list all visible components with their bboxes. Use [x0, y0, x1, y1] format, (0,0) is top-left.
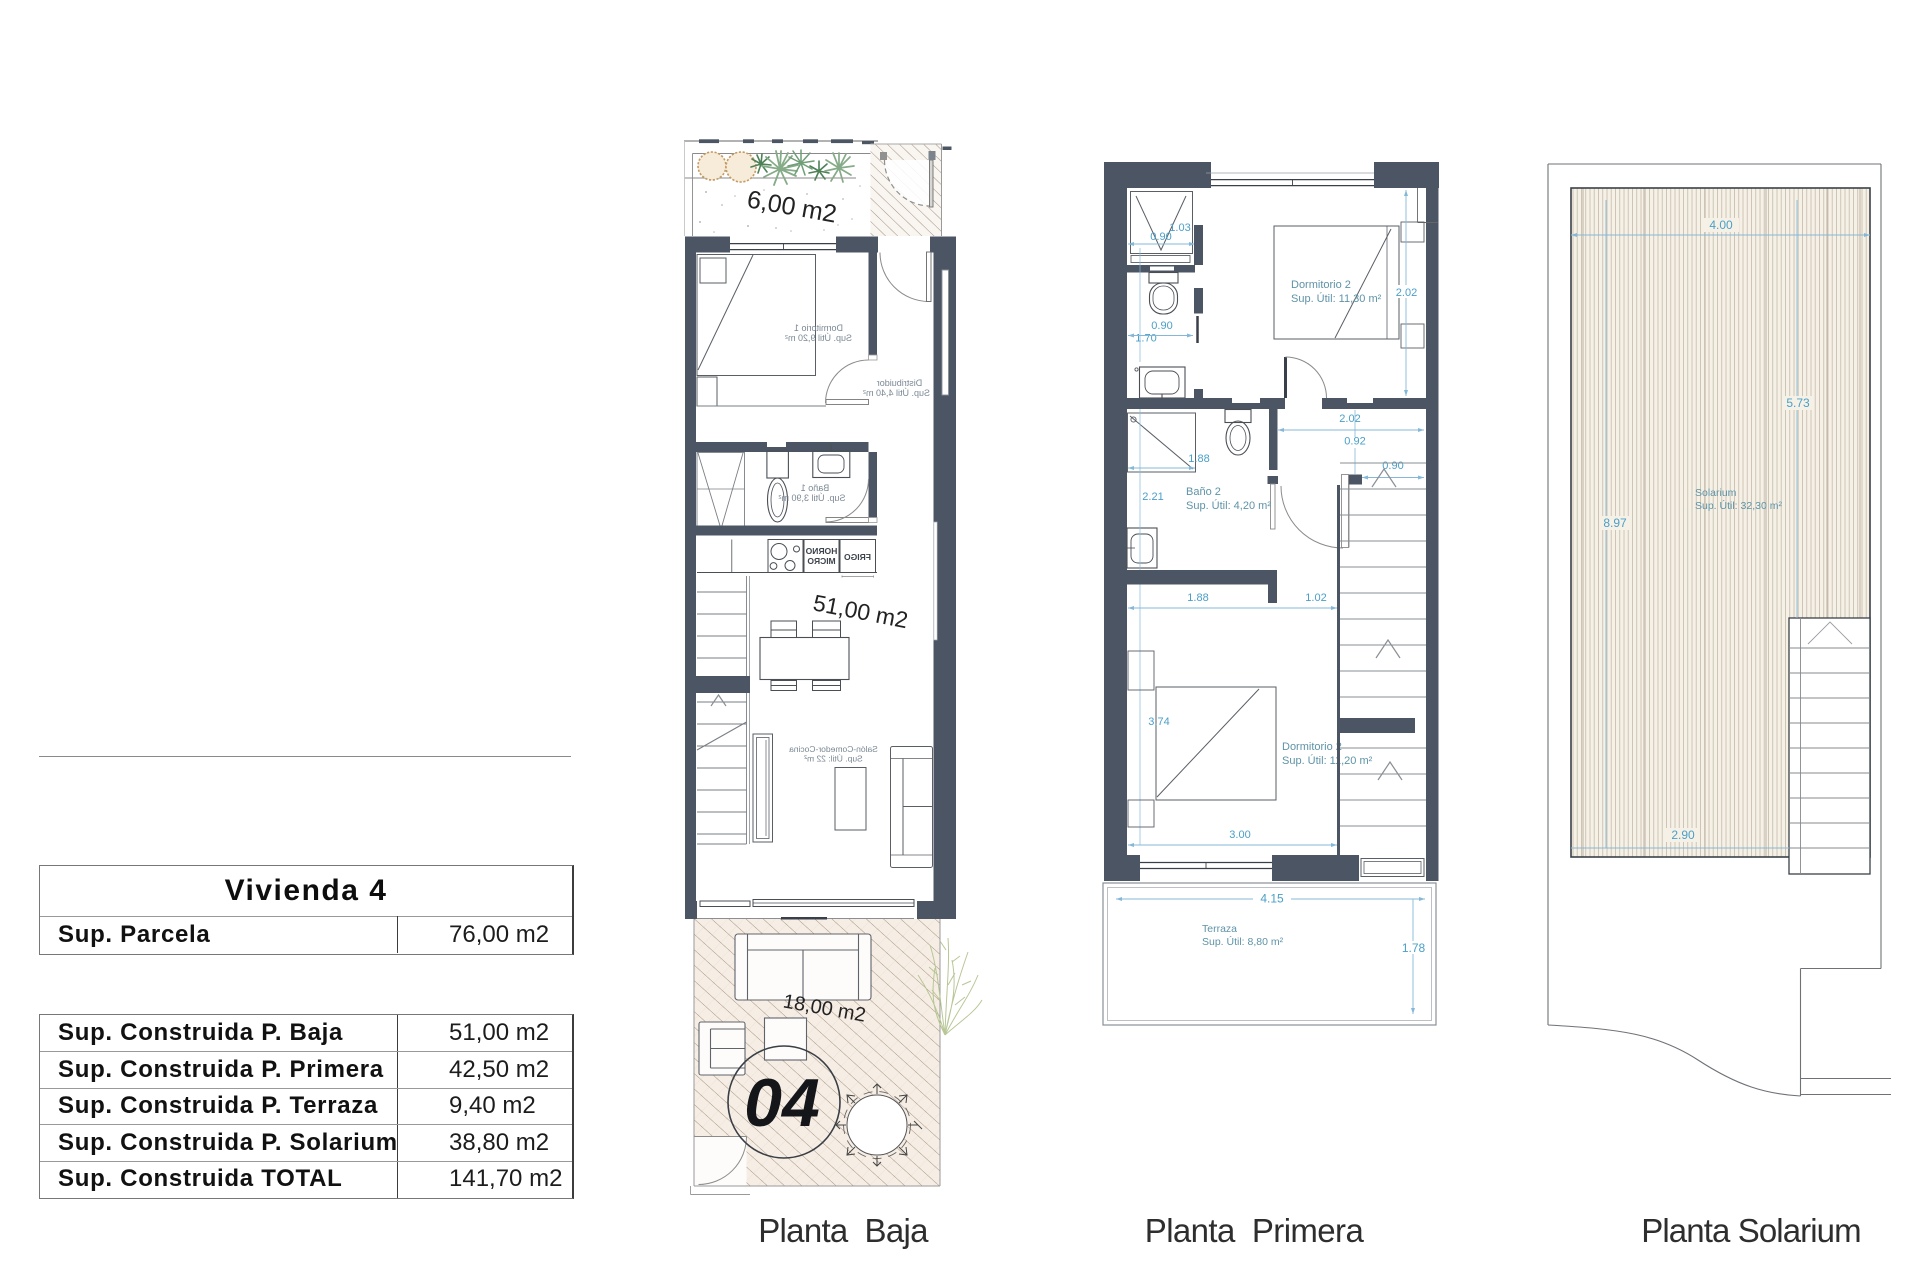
svg-text:04: 04 [744, 1065, 820, 1141]
svg-text:3.00: 3.00 [1229, 829, 1250, 841]
svg-text:Sup. Útil 4,40 m²: Sup. Útil 4,40 m² [863, 388, 930, 398]
svg-text:Dormitorio 2: Dormitorio 2 [1282, 741, 1342, 753]
svg-text:5.73: 5.73 [1786, 396, 1810, 410]
svg-text:Sup. Útil: 32,30 m²: Sup. Útil: 32,30 m² [1695, 499, 1782, 512]
svg-text:0.90: 0.90 [1150, 231, 1171, 243]
svg-text:4.15: 4.15 [1260, 892, 1284, 906]
svg-text:Terraza: Terraza [1202, 923, 1237, 935]
svg-text:6,00 m2: 6,00 m2 [745, 185, 839, 228]
svg-text:3.74: 3.74 [1148, 716, 1169, 728]
svg-text:1.70: 1.70 [1135, 333, 1156, 345]
svg-text:Sup. Útil: 4,20 m²: Sup. Útil: 4,20 m² [1186, 499, 1271, 512]
svg-text:1.78: 1.78 [1402, 941, 1426, 955]
svg-text:1.88: 1.88 [1187, 592, 1208, 604]
svg-text:Sup. Útil: 11,20 m²: Sup. Útil: 11,20 m² [1282, 754, 1373, 767]
svg-text:4.00: 4.00 [1709, 218, 1733, 232]
svg-text:2.90: 2.90 [1671, 828, 1695, 842]
svg-text:FRIGO: FRIGO [844, 552, 871, 562]
svg-text:0.90: 0.90 [1151, 320, 1172, 332]
svg-text:2.02: 2.02 [1396, 287, 1417, 299]
svg-text:8.97: 8.97 [1603, 516, 1627, 530]
svg-text:Baño 1: Baño 1 [801, 483, 830, 493]
svg-text:Solarium: Solarium [1695, 487, 1737, 499]
svg-text:Baño 2: Baño 2 [1186, 486, 1221, 498]
svg-text:Dormitorio 1: Dormitorio 1 [794, 323, 843, 333]
svg-text:Sup. Útil 3,90 m²: Sup. Útil 3,90 m² [778, 493, 845, 503]
svg-text:Salón-Comedor-Cocina: Salón-Comedor-Cocina [789, 744, 878, 754]
svg-text:1.02: 1.02 [1305, 592, 1326, 604]
svg-text:MICRO: MICRO [807, 556, 836, 566]
svg-text:Dormitorio 2: Dormitorio 2 [1291, 279, 1351, 291]
svg-text:1.88: 1.88 [1188, 453, 1209, 465]
svg-text:2.21: 2.21 [1142, 491, 1163, 503]
svg-text:Distribuidor: Distribuidor [877, 378, 923, 388]
svg-text:Sup. Útil 9,20 m²: Sup. Útil 9,20 m² [785, 333, 852, 343]
svg-text:Sup. Útil: 22 m²: Sup. Útil: 22 m² [804, 754, 863, 764]
svg-text:HORNO: HORNO [805, 546, 837, 556]
svg-text:Sup. Útil: 11,30 m²: Sup. Útil: 11,30 m² [1291, 292, 1382, 305]
svg-text:2.02: 2.02 [1339, 413, 1360, 425]
svg-text:1.03: 1.03 [1169, 222, 1190, 234]
svg-text:Sup. Útil: 8,80 m²: Sup. Útil: 8,80 m² [1202, 935, 1284, 948]
svg-text:0.92: 0.92 [1344, 436, 1365, 448]
